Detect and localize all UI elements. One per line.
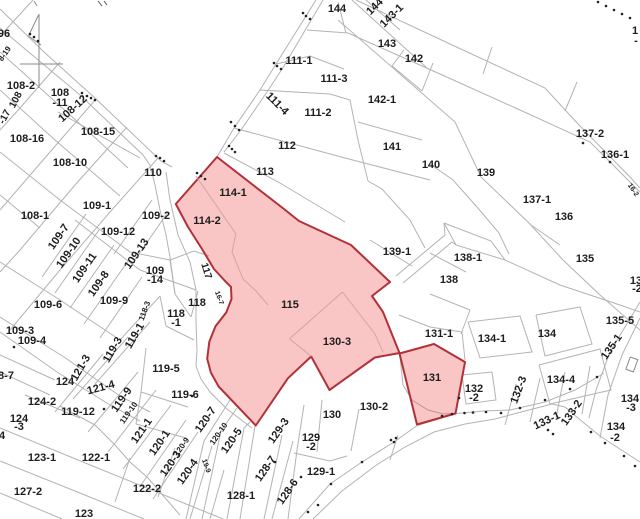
- svg-text:134: 134: [538, 328, 557, 340]
- svg-text:-2: -2: [610, 432, 620, 444]
- svg-text:134-1: 134-1: [478, 333, 506, 345]
- svg-text:138: 138: [440, 274, 458, 286]
- svg-text:127-2: 127-2: [14, 486, 42, 498]
- svg-text:129-1: 129-1: [307, 466, 335, 478]
- svg-text:108-2: 108-2: [7, 80, 35, 92]
- svg-text:134-4: 134-4: [547, 374, 576, 386]
- svg-text:111-2: 111-2: [305, 107, 332, 119]
- svg-text:138-1: 138-1: [454, 252, 482, 264]
- svg-text:109-2: 109-2: [142, 210, 170, 222]
- svg-text:114-1: 114-1: [219, 187, 247, 199]
- svg-text:119-6: 119-6: [171, 389, 199, 401]
- svg-text:-2: -2: [306, 441, 316, 453]
- svg-text:139-1: 139-1: [383, 246, 411, 258]
- svg-text:130-2: 130-2: [360, 401, 388, 413]
- svg-text:143: 143: [378, 38, 396, 50]
- svg-text:135: 135: [576, 253, 594, 265]
- svg-text:-3: -3: [14, 421, 24, 433]
- svg-text:111-3: 111-3: [321, 73, 348, 85]
- svg-text:-1: -1: [171, 317, 181, 329]
- svg-text:118: 118: [188, 297, 206, 309]
- svg-text:110: 110: [144, 167, 162, 179]
- svg-text:130: 130: [323, 409, 341, 421]
- svg-text:111-1: 111-1: [286, 55, 313, 67]
- svg-text:140: 140: [422, 159, 440, 171]
- svg-text:135-5: 135-5: [606, 315, 634, 327]
- svg-text:136: 136: [555, 211, 573, 223]
- svg-text:108-15: 108-15: [81, 126, 115, 138]
- svg-text:137-2: 137-2: [576, 128, 604, 140]
- svg-text:108-1: 108-1: [21, 210, 49, 222]
- svg-text:4: 4: [0, 430, 6, 442]
- svg-text:109-12: 109-12: [101, 226, 135, 238]
- svg-text:119-12: 119-12: [61, 406, 95, 418]
- svg-text:131-1: 131-1: [425, 328, 453, 340]
- svg-text:123-1: 123-1: [28, 452, 56, 464]
- svg-text:108-10: 108-10: [53, 157, 87, 169]
- svg-text:108-16: 108-16: [10, 133, 44, 145]
- svg-text:136-1: 136-1: [601, 149, 629, 161]
- svg-text:109-1: 109-1: [83, 200, 111, 212]
- svg-text:109-6: 109-6: [34, 299, 62, 311]
- svg-text:131: 131: [423, 372, 441, 384]
- svg-text:96: 96: [0, 28, 10, 40]
- svg-text:-2: -2: [469, 392, 479, 404]
- svg-text:-3: -3: [626, 402, 636, 414]
- svg-text:137-1: 137-1: [523, 194, 551, 206]
- svg-text:122-1: 122-1: [82, 452, 110, 464]
- svg-text:139: 139: [477, 167, 495, 179]
- svg-text:-14: -14: [147, 274, 164, 286]
- svg-text:109-9: 109-9: [100, 295, 128, 307]
- svg-text:113: 113: [256, 166, 274, 178]
- svg-text:115: 115: [281, 299, 299, 311]
- svg-text:142-1: 142-1: [368, 94, 396, 106]
- svg-text:109-4: 109-4: [18, 335, 47, 347]
- svg-text:142: 142: [405, 53, 423, 65]
- svg-text:-: -: [634, 35, 638, 47]
- svg-text:112: 112: [278, 140, 296, 152]
- svg-text:122-2: 122-2: [133, 483, 161, 495]
- svg-text:141: 141: [383, 141, 401, 153]
- svg-text:128-1: 128-1: [227, 490, 255, 502]
- svg-text:-2: -2: [632, 283, 640, 295]
- svg-text:124-2: 124-2: [28, 396, 56, 408]
- svg-text:8-7: 8-7: [0, 370, 14, 382]
- svg-text:114-2: 114-2: [193, 215, 221, 227]
- svg-text:144: 144: [328, 3, 347, 15]
- svg-text:130-3: 130-3: [323, 336, 351, 348]
- svg-text:123: 123: [75, 508, 93, 519]
- svg-text:119-5: 119-5: [152, 363, 180, 375]
